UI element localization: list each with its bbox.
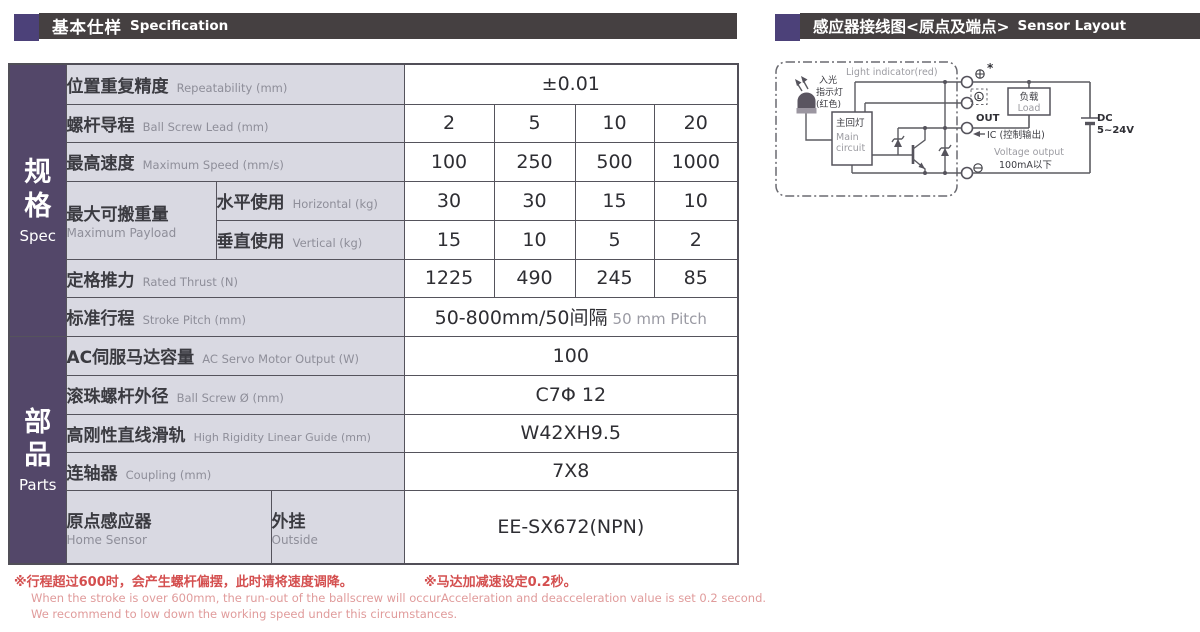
value-vertical-2: 10 (494, 220, 575, 259)
junction-dot (923, 171, 927, 175)
led-label-line3: (红色) (816, 98, 841, 110)
parts-group-label-en: Parts (10, 476, 66, 494)
sidebar-group-parts: 部品 Parts (9, 336, 66, 564)
row-label-home-sensor: 原点感应器 Home Sensor (66, 490, 271, 564)
transistor-emitter-arrow (919, 163, 926, 170)
main-circuit-label-en2: circuit (836, 143, 865, 154)
value-thrust-4: 85 (654, 259, 738, 297)
value-linear-guide: W42XH9.5 (404, 414, 738, 452)
repeatability-label-en: Repeatability (mm) (177, 81, 288, 95)
motor-label-en: AC Servo Motor Output (W) (202, 352, 359, 366)
horizontal-label-en: Horizontal (kg) (293, 197, 378, 211)
stroke-label-cn: 标准行程 (67, 309, 135, 329)
sensor-layout-title-en: Sensor Layout (1017, 18, 1126, 34)
out-terminal-label: OUT (976, 113, 1000, 124)
footnote-right-cn: ※马达加减速设定0.2秒。 (424, 575, 766, 591)
row-label-coupling: 连轴器 Coupling (mm) (66, 452, 404, 490)
row-label-payload-horizontal: 水平使用 Horizontal (kg) (216, 181, 404, 220)
led-base (797, 108, 817, 114)
current-limit-label: 100mA以下 (999, 160, 1052, 171)
asterisk-mark: * (987, 61, 994, 75)
row-label-payload-vertical: 垂直使用 Vertical (kg) (216, 220, 404, 259)
ic-output-label: IC (控制输出) (987, 129, 1045, 141)
value-ball-screw-dia: C7Φ 12 (404, 375, 738, 414)
junction-dot (943, 80, 947, 84)
value-thrust-1: 1225 (404, 259, 494, 297)
speed-label-cn: 最高速度 (67, 154, 135, 174)
value-servo-output: 100 (404, 336, 738, 375)
screw-dia-label-en: Ball Screw Ø (mm) (177, 391, 284, 405)
stroke-label-en: Stroke Pitch (mm) (143, 313, 246, 327)
value-repeatability: ±0.01 (404, 64, 738, 104)
sensor-wiring-diagram: 入光 指示灯 (红色) Light indicator(red) 主回灯 Mai… (770, 50, 1200, 200)
header-accent-square (14, 14, 39, 41)
coupling-label-cn: 连轴器 (67, 464, 118, 484)
section-header-specification: 基本仕样 Specification (14, 13, 737, 41)
lead-label-en: Ball Screw Lead (mm) (143, 120, 269, 134)
value-lead-3: 10 (575, 104, 654, 142)
stroke-value-main: 50-800mm/50间隔 (435, 307, 608, 329)
footnote-left-en2: We recommend to low down the working spe… (31, 607, 457, 623)
terminal-out (962, 123, 973, 134)
payload-label-en: Maximum Payload (67, 226, 216, 240)
light-indicator-label: Light indicator(red) (846, 67, 938, 78)
main-circuit-label-en1: Main (836, 132, 859, 143)
led-label-line2: 指示灯 (816, 86, 843, 98)
screw-dia-label-cn: 滚珠螺杆外径 (67, 387, 169, 407)
junction-dot (943, 171, 947, 175)
value-vertical-3: 5 (575, 220, 654, 259)
spec-sheet-page: 基本仕样 Specification 感应器接线图<原点及端点> Sensor … (0, 0, 1200, 632)
zener-diode-1-icon (894, 139, 902, 147)
spec-group-label-cn: 规格 (23, 156, 53, 224)
footnote-left-cn: ※行程超过600时，会产生螺杆偏摆，此时请将速度调降。 (14, 575, 457, 591)
row-label-servo-output: AC伺服马达容量 AC Servo Motor Output (W) (66, 336, 404, 375)
value-lead-4: 20 (654, 104, 738, 142)
stroke-value-sub: 50 mm Pitch (613, 310, 707, 328)
footnote-right-en: Acceleration and deacceleration value is… (441, 591, 766, 607)
dc-label-line1: DC (1097, 113, 1113, 124)
footnote-stroke-warning: ※行程超过600时，会产生螺杆偏摆，此时请将速度调降。 When the str… (14, 575, 457, 622)
terminal-minus (962, 168, 973, 179)
junction-dot (923, 126, 927, 130)
row-label-stroke-pitch: 标准行程 Stroke Pitch (mm) (66, 297, 404, 336)
horizontal-label-cn: 水平使用 (217, 193, 285, 213)
dc-label-line2: 5~24V (1097, 125, 1134, 136)
vertical-label-cn: 垂直使用 (217, 232, 285, 252)
lead-label-cn: 螺杆导程 (67, 116, 135, 136)
ic-arrow-icon (973, 131, 980, 137)
specification-title-en: Specification (130, 18, 228, 34)
footnote-left-en1: When the stroke is over 600mm, the run-o… (31, 591, 457, 607)
spec-group-label-en: Spec (10, 227, 66, 245)
value-thrust-3: 245 (575, 259, 654, 297)
footnote-acceleration: ※马达加减速设定0.2秒。 Acceleration and deacceler… (424, 575, 766, 607)
home-sensor-label-en: Home Sensor (67, 533, 271, 547)
voltage-output-label: Voltage output (994, 147, 1064, 158)
repeatability-label-cn: 位置重复精度 (67, 77, 169, 97)
coupling-label-en: Coupling (mm) (126, 468, 212, 482)
value-horizontal-3: 15 (575, 181, 654, 220)
value-horizontal-2: 30 (494, 181, 575, 220)
value-speed-2: 250 (494, 142, 575, 181)
row-label-rated-thrust: 定格推力 Rated Thrust (N) (66, 259, 404, 297)
row-label-max-speed: 最高速度 Maximum Speed (mm/s) (66, 142, 404, 181)
value-vertical-4: 2 (654, 220, 738, 259)
terminal-plus (962, 77, 973, 88)
guide-label-cn: 高刚性直线滑轨 (67, 426, 186, 446)
load-label-en: Load (1018, 103, 1041, 114)
junction-dot (943, 126, 947, 130)
value-vertical-1: 15 (404, 220, 494, 259)
section-header-sensor-layout: 感应器接线图<原点及端点> Sensor Layout (775, 13, 1200, 41)
l-symbol-letter: L (977, 93, 981, 101)
load-label-cn: 负载 (1019, 91, 1039, 103)
outside-label-en: Outside (272, 533, 404, 547)
value-thrust-2: 490 (494, 259, 575, 297)
motor-label-cn: AC伺服马达容量 (67, 348, 195, 368)
value-horizontal-1: 30 (404, 181, 494, 220)
transistor-collector (913, 128, 925, 149)
row-label-outside: 外挂 Outside (271, 490, 404, 564)
row-label-ball-screw-dia: 滚珠螺杆外径 Ball Screw Ø (mm) (66, 375, 404, 414)
home-sensor-label-cn: 原点感应器 (67, 512, 152, 532)
value-home-sensor: EE-SX672(NPN) (404, 490, 738, 564)
value-speed-4: 1000 (654, 142, 738, 181)
specification-title-cn: 基本仕样 (52, 14, 122, 38)
sensor-layout-title-cn: 感应器接线图<原点及端点> (813, 15, 1009, 37)
row-label-ball-screw-lead: 螺杆导程 Ball Screw Lead (mm) (66, 104, 404, 142)
zener-diode-2-icon (941, 148, 949, 156)
led-icon (798, 93, 816, 109)
wire-led (806, 113, 832, 140)
thrust-label-cn: 定格推力 (67, 271, 135, 291)
value-coupling: 7X8 (404, 452, 738, 490)
row-label-repeatability: 位置重复精度 Repeatability (mm) (66, 64, 404, 104)
payload-label-cn: 最大可搬重量 (67, 205, 169, 225)
vertical-label-en: Vertical (kg) (293, 236, 363, 250)
value-horizontal-4: 10 (654, 181, 738, 220)
main-circuit-label-cn: 主回灯 (836, 117, 865, 129)
value-speed-1: 100 (404, 142, 494, 181)
header-accent-square (775, 14, 800, 41)
guide-label-en: High Rigidity Linear Guide (mm) (194, 431, 371, 444)
outside-label-cn: 外挂 (272, 512, 306, 532)
led-arrowhead (801, 76, 808, 83)
row-label-max-payload: 最大可搬重量 Maximum Payload (66, 181, 216, 259)
sensor-layout-header-bar: 感应器接线图<原点及端点> Sensor Layout (800, 13, 1200, 39)
value-lead-2: 5 (494, 104, 575, 142)
wire-l-rail (865, 103, 962, 112)
led-arrowhead (795, 79, 802, 86)
led-label-line1: 入光 (819, 74, 837, 86)
value-lead-1: 2 (404, 104, 494, 142)
row-label-linear-guide: 高刚性直线滑轨 High Rigidity Linear Guide (mm) (66, 414, 404, 452)
specification-table: 规格 Spec 位置重复精度 Repeatability (mm) ±0.01 … (8, 63, 739, 565)
speed-label-en: Maximum Speed (mm/s) (143, 158, 284, 172)
terminal-l (962, 98, 973, 109)
thrust-label-en: Rated Thrust (N) (143, 275, 238, 289)
parts-group-label-cn: 部品 (23, 406, 53, 474)
specification-header-bar: 基本仕样 Specification (39, 13, 737, 39)
value-stroke-pitch: 50-800mm/50间隔50 mm Pitch (404, 297, 738, 336)
sidebar-group-spec: 规格 Spec (9, 64, 66, 336)
value-speed-3: 500 (575, 142, 654, 181)
